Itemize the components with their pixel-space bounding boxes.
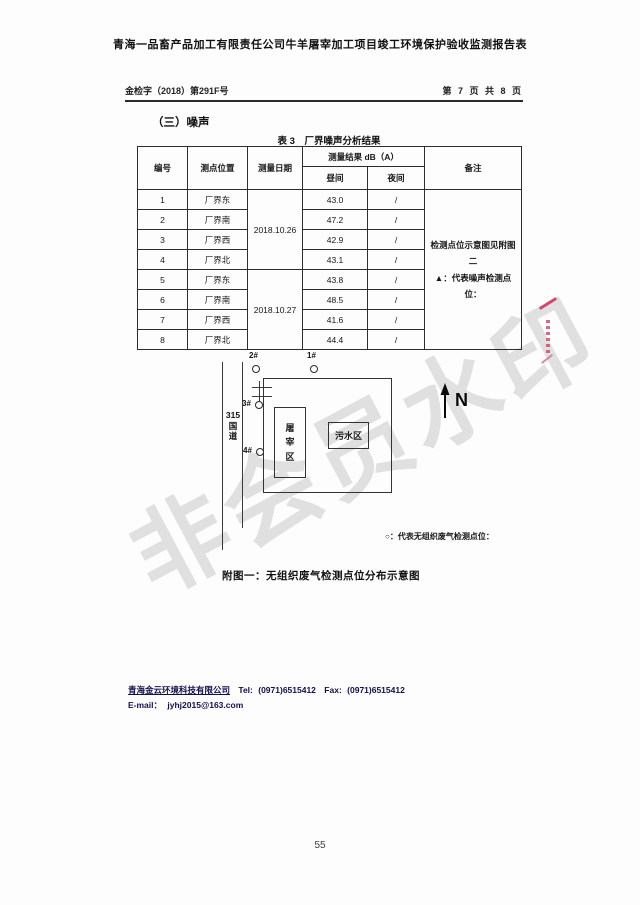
cell-no: 1 bbox=[138, 190, 188, 210]
col-header-no: 编号 bbox=[138, 147, 188, 190]
page-number: 55 bbox=[0, 840, 640, 851]
email-label: E-mail： bbox=[128, 700, 162, 710]
cell-day: 43.8 bbox=[303, 270, 368, 290]
tel-value: (0971)6515412 bbox=[258, 685, 316, 695]
page-header: 金检字（2018）第291F号 第 7 页 共 8 页 bbox=[125, 82, 523, 102]
cell-day: 48.5 bbox=[303, 290, 368, 310]
seal-stroke bbox=[541, 354, 553, 364]
figure-caption: 附图一：无组织废气检测点位分布示意图 bbox=[222, 568, 420, 583]
email-value: jyhj2015@163.com bbox=[167, 700, 243, 710]
gas-point-1-label: 1# bbox=[307, 351, 316, 360]
cell-night: / bbox=[368, 270, 425, 290]
gas-point-3-circle bbox=[255, 401, 263, 409]
tel-label: Tel: bbox=[238, 685, 252, 695]
table-title: 表 3 厂界噪声分析结果 bbox=[137, 133, 521, 147]
cell-location: 厂界西 bbox=[188, 310, 248, 330]
fax-label: Fax: bbox=[324, 685, 341, 695]
seal-text-marks bbox=[546, 320, 550, 354]
col-header-date: 测量日期 bbox=[248, 147, 303, 190]
col-header-day: 昼间 bbox=[303, 167, 368, 190]
cell-night: / bbox=[368, 210, 425, 230]
cell-no: 3 bbox=[138, 230, 188, 250]
document-page: 非会员水印 青海一品畜产品加工有限责任公司牛羊屠宰加工项目竣工环境保护验收监测报… bbox=[0, 0, 640, 905]
gas-point-legend: ○：代表无组织废气检测点位： bbox=[385, 531, 494, 542]
gas-point-1-circle bbox=[310, 365, 318, 373]
cell-day: 41.6 bbox=[303, 310, 368, 330]
cell-location: 厂界北 bbox=[188, 250, 248, 270]
report-number: 金检字（2018）第291F号 bbox=[125, 84, 229, 97]
cell-location: 厂界东 bbox=[188, 190, 248, 210]
document-title: 青海一品畜产品加工有限责任公司牛羊屠宰加工项目竣工环境保护验收监测报告表 bbox=[0, 36, 640, 52]
company-name: 青海金云环境科技有限公司 bbox=[128, 685, 230, 695]
cell-location: 厂界西 bbox=[188, 230, 248, 250]
sewage-area: 污水区 bbox=[328, 422, 369, 449]
cell-night: / bbox=[368, 310, 425, 330]
cell-no: 6 bbox=[138, 290, 188, 310]
cell-day: 43.0 bbox=[303, 190, 368, 210]
cell-night: / bbox=[368, 190, 425, 210]
gas-point-2-circle bbox=[252, 365, 260, 373]
cell-night: / bbox=[368, 230, 425, 250]
cell-day: 44.4 bbox=[303, 330, 368, 350]
remark-line2: ▲：代表噪声检测点位： bbox=[427, 270, 519, 302]
cell-no: 5 bbox=[138, 270, 188, 290]
cell-night: / bbox=[368, 250, 425, 270]
cell-location: 厂界南 bbox=[188, 210, 248, 230]
north-arrow-icon bbox=[438, 383, 452, 419]
section-heading: （三）噪声 bbox=[152, 114, 210, 130]
cell-day: 43.1 bbox=[303, 250, 368, 270]
cell-location: 厂界东 bbox=[188, 270, 248, 290]
cell-no: 4 bbox=[138, 250, 188, 270]
col-header-location: 测点位置 bbox=[188, 147, 248, 190]
road-line-right bbox=[242, 362, 243, 528]
cell-date-group2: 2018.10.27 bbox=[248, 270, 303, 350]
seal-stroke bbox=[539, 297, 558, 310]
road-label: 315 国 道 bbox=[224, 410, 242, 442]
cell-remark: 检测点位示意图见附图二 ▲：代表噪声检测点位： bbox=[425, 190, 522, 350]
col-header-night: 夜间 bbox=[368, 167, 425, 190]
cell-no: 2 bbox=[138, 210, 188, 230]
remark-line1: 检测点位示意图见附图二 bbox=[427, 237, 519, 269]
slaughter-area: 屠 宰 区 bbox=[274, 407, 306, 478]
cell-no: 7 bbox=[138, 310, 188, 330]
gas-point-2-label: 2# bbox=[249, 351, 258, 360]
cell-location: 厂界北 bbox=[188, 330, 248, 350]
noise-results-table: 编号 测点位置 测量日期 测量结果 dB（A） 备注 昼间 夜间 1 厂界东 2… bbox=[137, 146, 522, 350]
gas-point-4-label: 4# bbox=[243, 446, 252, 455]
road-line-left bbox=[222, 362, 223, 550]
page-indicator: 第 7 页 共 8 页 bbox=[442, 84, 523, 97]
north-label: N bbox=[455, 390, 468, 411]
cell-date-group1: 2018.10.26 bbox=[248, 190, 303, 270]
footer-contact: 青海金云环境科技有限公司 Tel: (0971)6515412 Fax: (09… bbox=[128, 684, 405, 711]
cell-day: 47.2 bbox=[303, 210, 368, 230]
cell-no: 8 bbox=[138, 330, 188, 350]
cell-day: 42.9 bbox=[303, 230, 368, 250]
cell-night: / bbox=[368, 330, 425, 350]
cell-location: 厂界南 bbox=[188, 290, 248, 310]
gas-point-3-label: 3# bbox=[242, 399, 251, 408]
col-header-result: 测量结果 dB（A） bbox=[303, 147, 425, 167]
red-seal-fragment bbox=[536, 296, 562, 376]
cell-night: / bbox=[368, 290, 425, 310]
col-header-remark: 备注 bbox=[425, 147, 522, 190]
table-row: 1 厂界东 2018.10.26 43.0 / 检测点位示意图见附图二 ▲：代表… bbox=[138, 190, 522, 210]
gate-mark-post bbox=[259, 381, 260, 401]
fax-value: (0971)6515412 bbox=[347, 685, 405, 695]
